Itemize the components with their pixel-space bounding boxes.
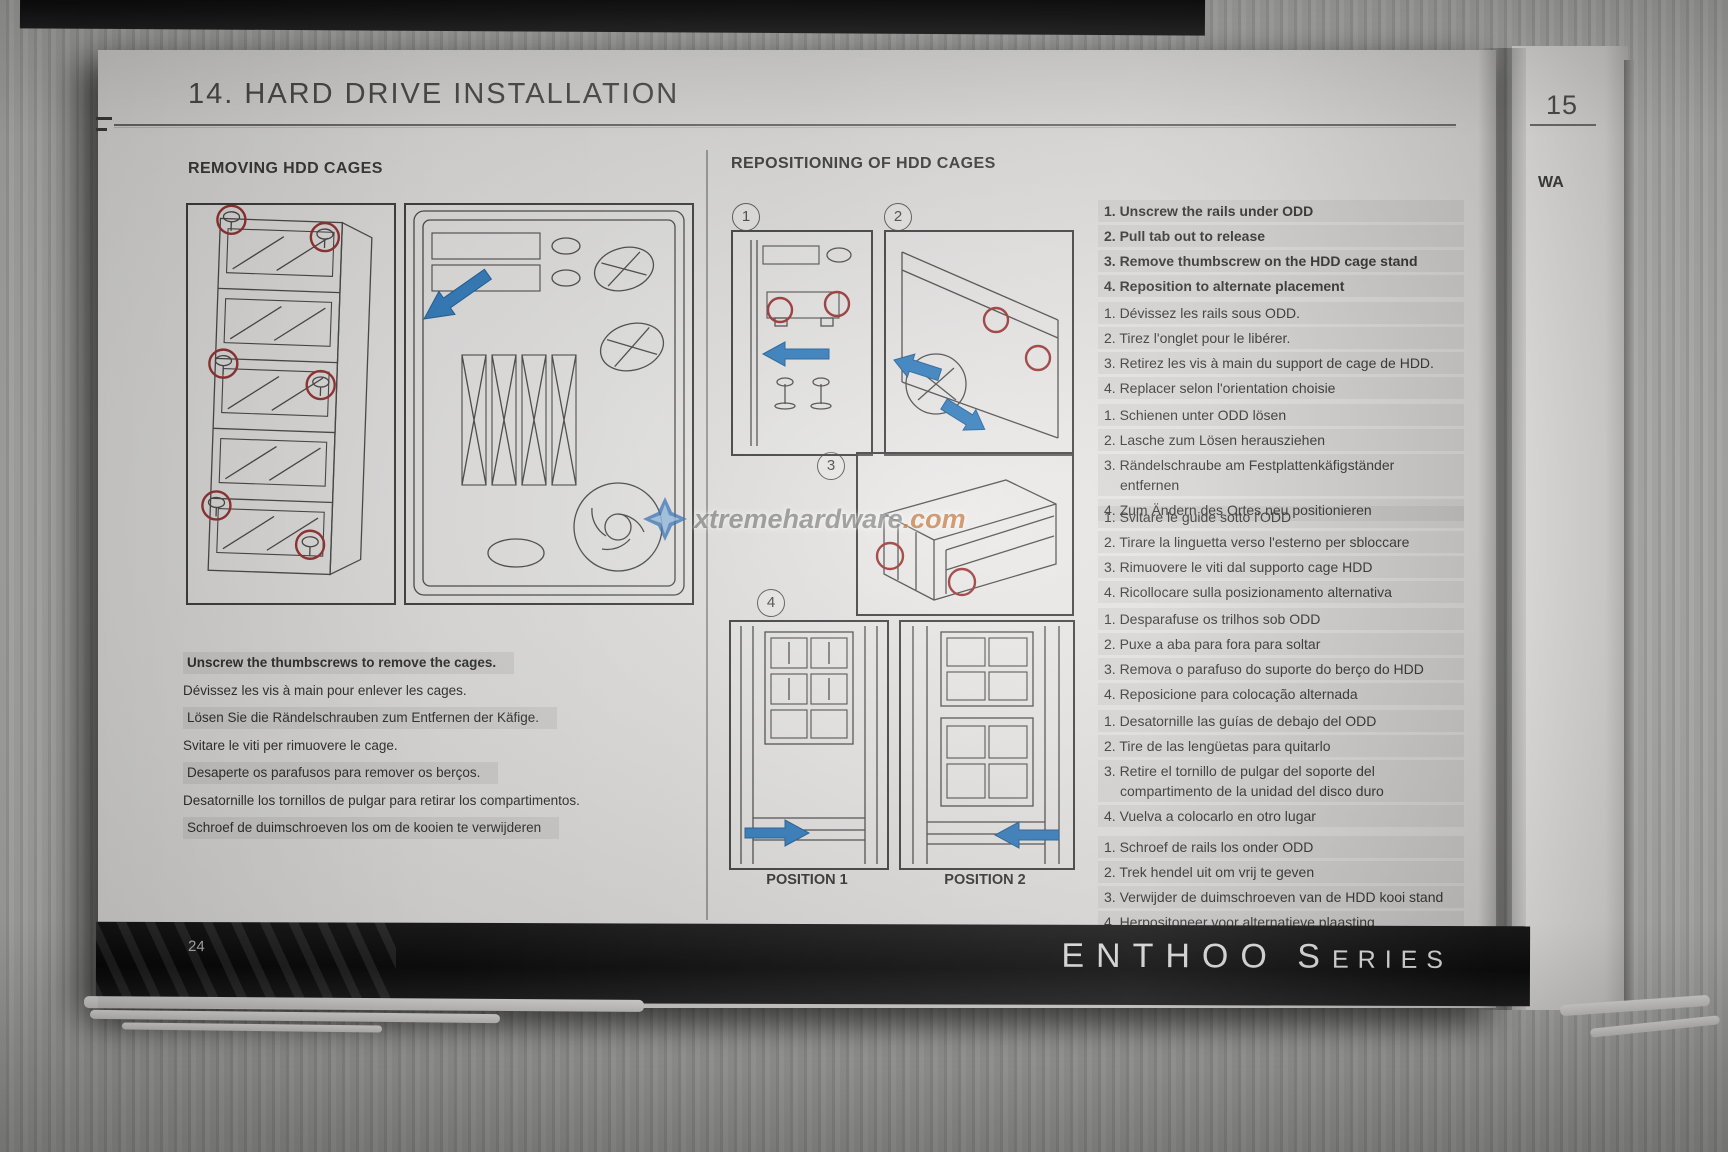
adjacent-title-rule bbox=[1530, 124, 1596, 126]
instructions-fr: 1. Dévissez les rails sous ODD. 2. Tirez… bbox=[1098, 302, 1464, 402]
position2-diagram bbox=[899, 620, 1075, 870]
position2-drawing bbox=[901, 622, 1073, 868]
caption-line: Desatornille los tornillos de pulgar par… bbox=[183, 790, 580, 812]
step2-drawing bbox=[886, 232, 1072, 454]
position2-label: POSITION 2 bbox=[899, 872, 1071, 888]
watermark-text: xtremehardware.com bbox=[694, 504, 966, 535]
instruction-line: 4. Ricollocare sulla posizionamento alte… bbox=[1098, 581, 1464, 603]
case-interior-diagram bbox=[404, 203, 694, 605]
caption-line: Desaperte os parafusos para remover os b… bbox=[183, 762, 498, 784]
caption-line: Svitare le viti per rimuovere le cage. bbox=[183, 735, 398, 757]
instruction-line: 3. Rimuovere le viti dal supporto cage H… bbox=[1098, 556, 1464, 578]
instruction-line: 1. Schienen unter ODD lösen bbox=[1098, 404, 1464, 426]
slide-right-arrow bbox=[745, 820, 809, 846]
footer-band: 24 ENTHOO SERIES bbox=[96, 922, 1530, 1007]
instructions-pt: 1. Desparafuse os trilhos sob ODD 2. Pux… bbox=[1098, 608, 1464, 708]
instruction-line: 1. Schroef de rails los onder ODD bbox=[1098, 836, 1464, 858]
instruction-line: 2. Puxe a aba para fora para soltar bbox=[1098, 633, 1464, 655]
instruction-line: 2. Tire de las lengüetas para quitarlo bbox=[1098, 735, 1464, 757]
instructions-es: 1. Desatornille las guías de debajo del … bbox=[1098, 710, 1464, 830]
instruction-line: 3. Verwijder de duimschroeven van de HDD… bbox=[1098, 886, 1464, 908]
registration-mark bbox=[96, 128, 107, 131]
page-stack-edge bbox=[84, 996, 644, 1012]
instruction-line: 2. Tirare la linguetta verso l'esterno p… bbox=[1098, 531, 1464, 553]
instruction-line: 3. Remova o parafuso do suporte do berço… bbox=[1098, 658, 1464, 680]
instruction-line: 2. Trek hendel uit om vrij te geven bbox=[1098, 861, 1464, 883]
step1-diagram bbox=[731, 230, 873, 456]
instruction-line: 3. Retirez les vis à main du support de … bbox=[1098, 352, 1464, 374]
xtremehardware-logo-icon bbox=[642, 496, 688, 542]
brand-series-rest: ERIES bbox=[1332, 946, 1452, 974]
instruction-line: 1. Desparafuse os trilhos sob ODD bbox=[1098, 608, 1464, 630]
footer-glare bbox=[96, 922, 396, 1003]
removing-heading: REMOVING HDD CAGES bbox=[188, 160, 383, 178]
manual-photo: 15 WA 14. HARD DRIVE INSTALLATION REMOVI… bbox=[0, 0, 1728, 1152]
step2-diagram bbox=[884, 230, 1074, 456]
page-title: 14. HARD DRIVE INSTALLATION bbox=[188, 78, 679, 111]
position1-label: POSITION 1 bbox=[729, 872, 885, 888]
page-stack-edge bbox=[1590, 1015, 1720, 1038]
instruction-line: 4. Replacer selon l'orientation choisie bbox=[1098, 377, 1464, 399]
instructions-it: 1. Svitare le guide sotto l'ODD 2. Tirar… bbox=[1098, 506, 1464, 606]
drive-trays bbox=[217, 229, 334, 557]
instructions-nl: 1. Schroef de rails los onder ODD 2. Tre… bbox=[1098, 836, 1464, 936]
instruction-line: 4. Vuelva a colocarlo en otro lugar bbox=[1098, 805, 1464, 827]
instruction-line: 1. Desatornille las guías de debajo del … bbox=[1098, 710, 1464, 732]
hdd-cage-tower-drawing bbox=[188, 205, 394, 603]
caption-line: Unscrew the thumbscrews to remove the ca… bbox=[183, 652, 514, 674]
instruction-line: 4. Reposicione para colocação alternada bbox=[1098, 683, 1464, 705]
instruction-line: 3. Remove thumbscrew on the HDD cage sta… bbox=[1098, 250, 1464, 272]
adjacent-page-edge bbox=[1624, 60, 1634, 1010]
cage-cells bbox=[771, 638, 847, 738]
caption-line: Schroef de duimschroeven los om de kooie… bbox=[183, 817, 559, 839]
watermark: xtremehardware.com bbox=[642, 496, 966, 542]
instruction-line: 3. Retire el tornillo de pulgar del sopo… bbox=[1098, 760, 1464, 802]
step-circle-4: 4 bbox=[757, 589, 785, 617]
repositioning-heading: REPOSITIONING OF HDD CAGES bbox=[731, 155, 996, 173]
registration-mark bbox=[96, 117, 112, 120]
page-number: 24 bbox=[188, 938, 205, 955]
adjacent-page bbox=[1512, 46, 1628, 1010]
instruction-line: 4. Reposition to alternate placement bbox=[1098, 275, 1464, 297]
instructions-en: 1. Unscrew the rails under ODD 2. Pull t… bbox=[1098, 200, 1464, 300]
brand-logotype: ENTHOO SERIES bbox=[1061, 937, 1452, 977]
instruction-line: 1. Svitare le guide sotto l'ODD bbox=[1098, 506, 1464, 528]
caption-line: Lösen Sie die Rändelschrauben zum Entfer… bbox=[183, 707, 557, 729]
title-rule bbox=[114, 124, 1456, 126]
step-circle-3: 3 bbox=[817, 452, 845, 480]
page-stack-edge bbox=[90, 1010, 500, 1023]
step1-drawing bbox=[733, 232, 871, 454]
brand-enthoo: ENTHOO bbox=[1061, 937, 1279, 976]
vertical-trays bbox=[462, 355, 576, 485]
screws bbox=[775, 378, 831, 409]
position1-diagram bbox=[729, 620, 889, 870]
instruction-line: 2. Tirez l'onglet pour le libérer. bbox=[1098, 327, 1464, 349]
instruction-line: 2. Pull tab out to release bbox=[1098, 225, 1464, 247]
adjacent-heading-fragment: WA bbox=[1538, 174, 1564, 192]
brand-series-initial: S bbox=[1297, 938, 1332, 976]
watermark-tld: .com bbox=[903, 504, 966, 534]
instruction-line: 2. Lasche zum Lösen herausziehen bbox=[1098, 429, 1464, 451]
page-gutter-shadow bbox=[1478, 48, 1526, 1010]
case-interior-drawing bbox=[406, 205, 692, 603]
caption-line: Dévissez les vis à main pour enlever les… bbox=[183, 680, 467, 702]
binding-edge-strip bbox=[20, 0, 1205, 36]
adjacent-section-number: 15 bbox=[1546, 90, 1578, 121]
step-circle-1: 1 bbox=[732, 203, 760, 231]
position1-drawing bbox=[731, 622, 887, 868]
step-circle-2: 2 bbox=[884, 203, 912, 231]
hdd-cage-tower-diagram bbox=[186, 203, 396, 605]
page-stack-edge bbox=[122, 1022, 382, 1032]
pull-arrow bbox=[763, 342, 829, 366]
instruction-line: 3. Rändelschraube am Festplattenkäfigstä… bbox=[1098, 454, 1464, 496]
remove-arrow bbox=[938, 394, 991, 440]
watermark-site: xtremehardware bbox=[694, 504, 903, 534]
instruction-line: 1. Dévissez les rails sous ODD. bbox=[1098, 302, 1464, 324]
title-rule-shadow bbox=[114, 127, 1456, 128]
instruction-line: 1. Unscrew the rails under ODD bbox=[1098, 200, 1464, 222]
